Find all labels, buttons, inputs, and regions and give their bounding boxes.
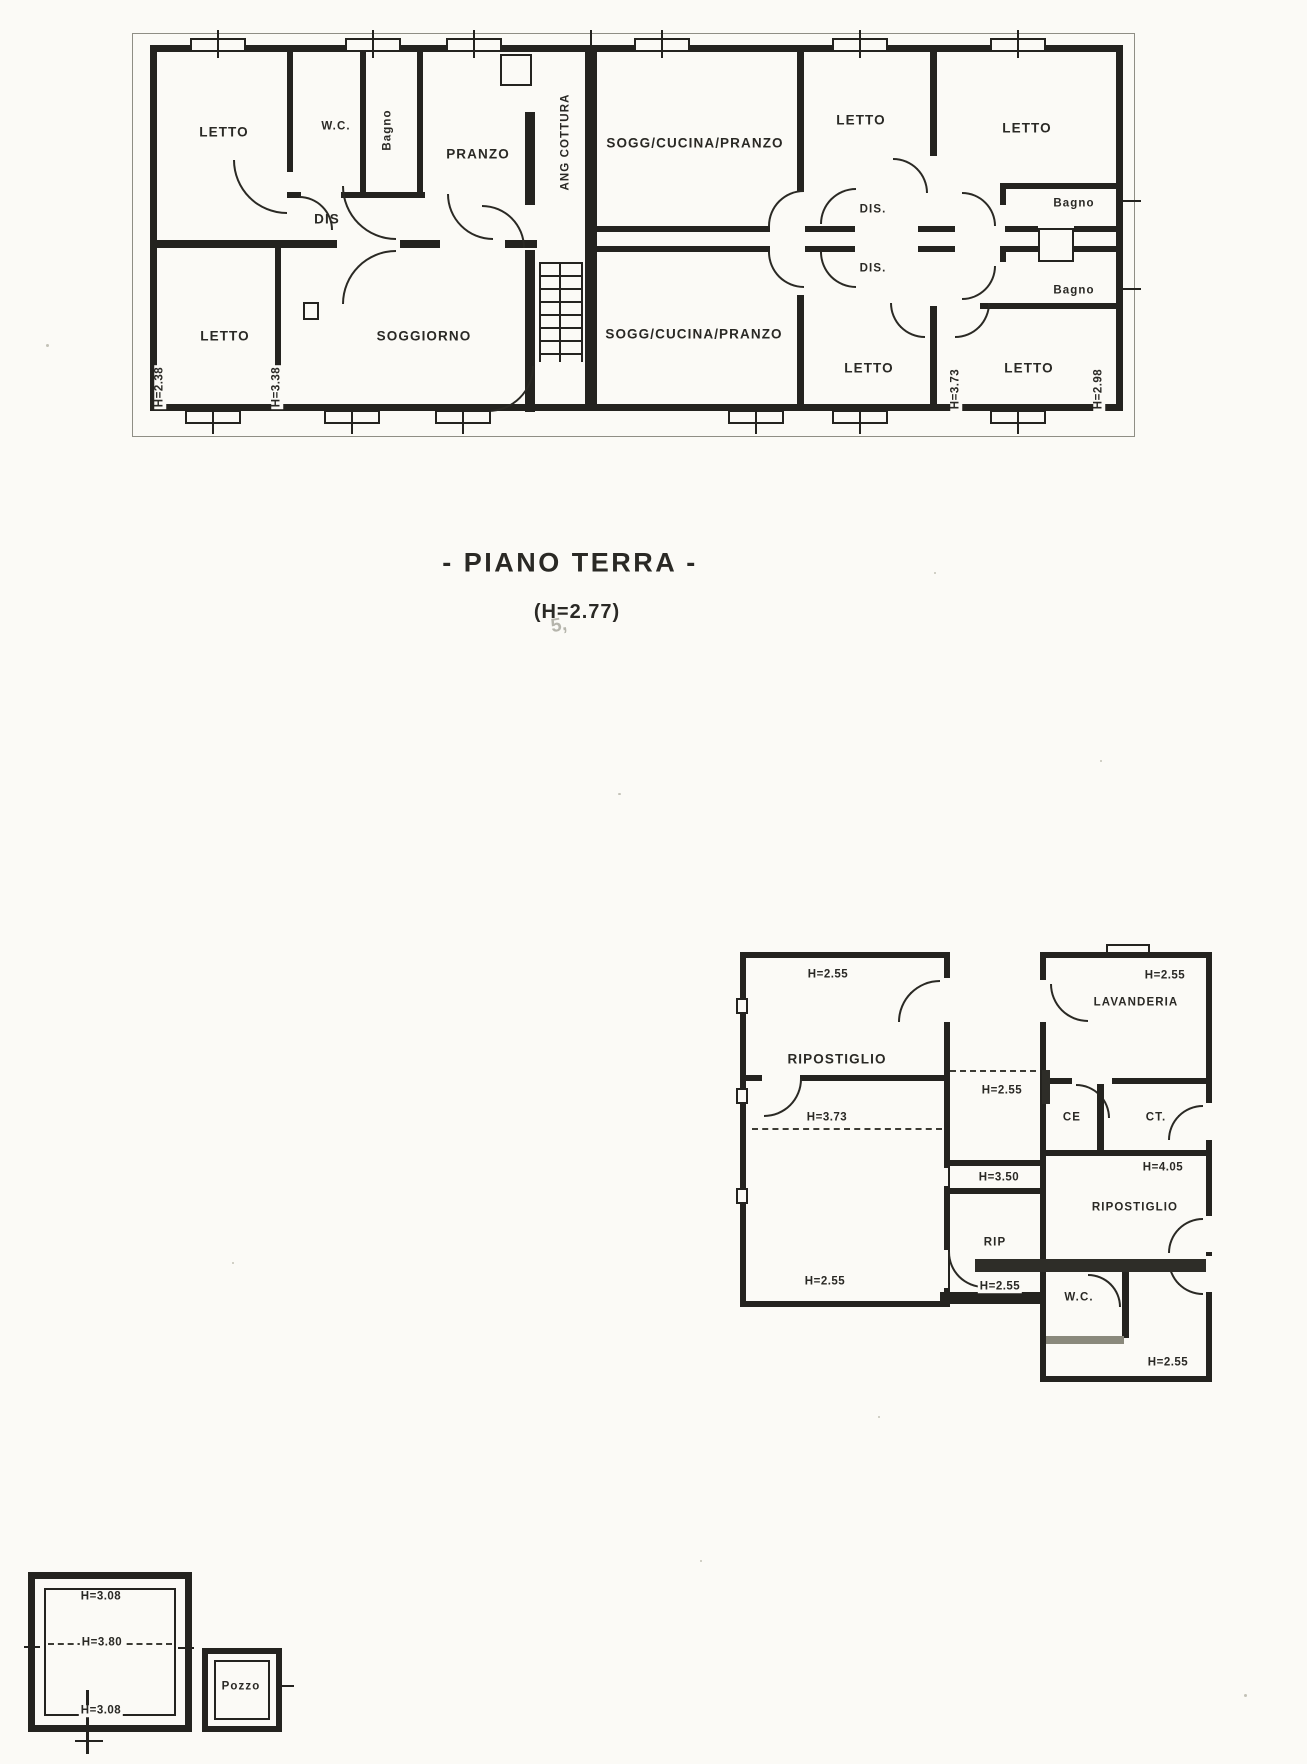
room-label-pranzo: PRANZO [446,147,510,161]
wall-notch [736,1188,748,1204]
height-label: H=3.73 [950,367,962,411]
wall-segment [287,52,293,172]
flue-symbol [303,302,319,320]
section-tick [24,1646,40,1648]
window-axis-tick [351,406,353,434]
window-axis-tick [859,30,861,58]
scan-speck [934,572,936,574]
wall-segment [1074,226,1123,232]
room-label-letto: LETTO [1004,361,1054,375]
wall-segment [800,1075,944,1081]
wall-tick [1123,288,1141,290]
door-gap [1204,1216,1216,1252]
wall-segment [944,1160,1042,1166]
height-label: H=3.80 [80,1637,124,1649]
door-gap [938,978,952,1022]
outbuilding-inner-wall [44,1588,176,1716]
window-axis-tick [1017,406,1019,434]
chimney-notch [500,54,532,86]
wall-segment [930,52,937,156]
door-gap [938,1250,948,1288]
passage-gap [938,1168,948,1186]
wall-segment [797,295,804,411]
wall-segment [157,240,337,248]
wall-segment [400,240,440,248]
height-label: H=2.55 [806,969,850,981]
window-axis-tick [462,406,464,434]
wall-segment [1000,183,1116,189]
wall-segment [797,52,804,192]
wall-segment [805,226,855,232]
section-line [86,1690,89,1754]
room-label-soggiorno: SOGGIORNO [377,329,472,343]
wall-segment [1000,189,1006,205]
room-label-bagno: Bagno [382,109,394,150]
height-label: H=3.73 [805,1112,849,1124]
room-label-dis: DIS [314,212,340,226]
height-label: H=2.55 [978,1281,1022,1293]
dark-dividing-wall [975,1259,1206,1272]
room-label-letto: LETTO [199,125,249,139]
wall-segment [1112,1078,1206,1084]
room-label-bagno: Bagno [1053,198,1094,210]
scan-speck [46,344,49,347]
parapet-notch [1106,944,1150,958]
plan-title: - PIANO TERRA - [442,550,698,577]
window-axis-tick [1017,30,1019,58]
scan-speck [618,793,621,795]
room-label-letto: LETTO [1002,121,1052,135]
wall-segment [1000,246,1006,262]
plan-height-note: (H=2.77) [534,602,620,622]
wall-segment [1005,246,1038,252]
room-label-sogg-cucina-pranzo: SOGG/CUCINA/PRANZO [606,136,783,150]
wall-segment [940,1292,1044,1304]
window-axis-tick [217,30,219,58]
wall-segment [944,1188,1042,1194]
room-label-rip: RIP [984,1237,1006,1249]
wall-notch [736,998,748,1014]
height-label: H=2.55 [1146,1357,1190,1369]
wall-segment [1074,246,1123,252]
room-label-ce: CE [1063,1112,1081,1124]
room-label-letto: LETTO [836,113,886,127]
window-axis-tick [661,30,663,58]
well-tick [280,1685,294,1687]
room-label-letto: LETTO [200,329,250,343]
door-gap [1204,1103,1216,1140]
wall-segment [597,246,770,252]
room-label-ripostiglio: RIPOSTIGLIO [1092,1202,1178,1214]
wall-segment [1005,226,1038,232]
room-label-wc: W.C. [321,121,350,133]
room-label-letto: LETTO [844,361,894,375]
door-gap [1037,980,1049,1022]
party-wall [585,52,597,411]
wall-segment [360,52,366,192]
window-axis-tick [859,406,861,434]
room-label-ang-cottura: ANG COTTURA [560,93,572,190]
height-label: H=2.55 [1143,970,1187,982]
room-label-wc: W.C. [1064,1292,1093,1304]
scan-speck [1244,1694,1247,1697]
wall-segment [1097,1084,1104,1150]
height-label: H=3.38 [271,365,283,409]
window-axis-tick [473,30,475,58]
well-label: Pozzo [222,1681,261,1693]
room-label-bagno: Bagno [1053,285,1094,297]
scanned-floorplan-page: LETTO W.C. Bagno PRANZO DIS LETTO SOGGIO… [0,0,1307,1764]
threshold-band [1046,1336,1124,1344]
room-label-ripostiglio: RIPOSTIGLIO [787,1052,886,1066]
scan-speck [878,1416,880,1418]
ceiling-change-line [752,1128,942,1130]
wall-segment [1122,1272,1129,1338]
wall-segment [930,306,937,411]
height-label: H=4.05 [1141,1162,1185,1174]
wall-segment [746,1075,762,1081]
party-wall-tick [590,30,592,58]
room-label-ct: CT. [1146,1112,1167,1124]
room-label-dis: DIS. [860,263,887,275]
wall-segment [980,303,1116,309]
wall-segment [525,112,535,205]
wall-segment [597,226,770,232]
window-axis-tick [755,406,757,434]
room-label-dis: DIS. [860,204,887,216]
scan-speck [232,1262,234,1264]
staircase [539,262,583,362]
stair-center-line [559,262,561,362]
ceiling-change-line [950,1070,1036,1072]
wall-tick [1123,200,1141,202]
window-axis-tick [212,406,214,434]
wall-segment [417,52,423,192]
height-label: H=3.50 [977,1172,1021,1184]
section-tick [75,1740,103,1742]
dark-wall-stub [1042,1070,1050,1104]
wall-segment [918,226,955,232]
wall-segment [918,246,955,252]
wall-notch [736,1088,748,1104]
wall-segment [1046,1150,1206,1156]
bath-alcove [1038,228,1074,262]
height-label: H=2.55 [803,1276,847,1288]
height-label: H=3.08 [79,1705,123,1717]
height-label: H=2.98 [1093,367,1105,411]
room-label-lavanderia: LAVANDERIA [1094,997,1179,1009]
scan-speck [700,1560,702,1562]
height-label: H=2.55 [980,1085,1024,1097]
room-label-sogg-cucina-pranzo: SOGG/CUCINA/PRANZO [605,327,782,341]
section-tick [178,1647,194,1649]
height-label: H=2.38 [154,365,166,409]
window-axis-tick [372,30,374,58]
scan-smudge: 5, [549,614,568,638]
scan-speck [1100,760,1102,762]
height-label: H=3.08 [79,1591,123,1603]
